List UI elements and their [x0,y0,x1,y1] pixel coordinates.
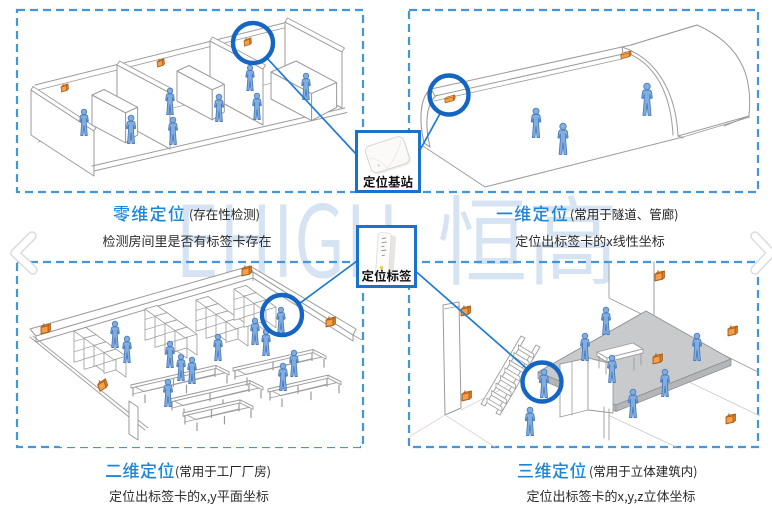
svg-text:一维定位: 一维定位 [496,200,569,225]
svg-text:定位出标签卡的x线性坐标: 定位出标签卡的x线性坐标 [515,231,664,250]
svg-text:定位标签: 定位标签 [361,266,412,285]
svg-text:定位出标签卡的x,y,z立体坐标: 定位出标签卡的x,y,z立体坐标 [527,486,696,505]
svg-text:(存在性检测): (存在性检测) [189,204,260,223]
svg-text:定位基站: 定位基站 [363,172,414,191]
svg-text:零维定位: 零维定位 [113,200,186,225]
svg-text:(常用于隧道、管廊): (常用于隧道、管廊) [570,204,678,223]
svg-text:检测房间里是否有标签卡存在: 检测房间里是否有标签卡存在 [102,231,271,250]
svg-text:定位出标签卡的x,y平面坐标: 定位出标签卡的x,y平面坐标 [109,486,269,505]
svg-text:三维定位: 三维定位 [517,457,587,482]
svg-text:二维定位: 二维定位 [105,457,175,482]
svg-text:(常用于立体建筑内): (常用于立体建筑内) [589,461,697,480]
svg-text:(常用于工厂厂房): (常用于工厂厂房) [175,461,271,480]
